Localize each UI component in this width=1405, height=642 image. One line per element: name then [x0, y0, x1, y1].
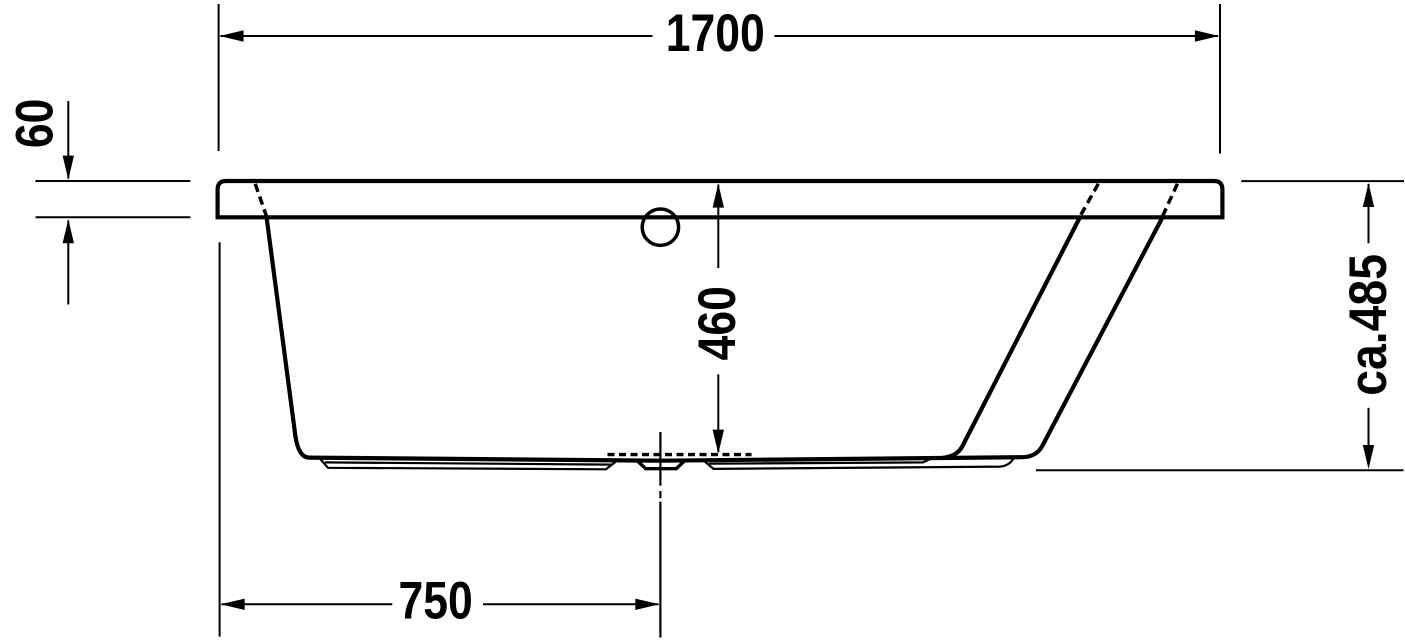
- svg-text:460: 460: [688, 286, 746, 360]
- svg-text:ca.485: ca.485: [1338, 254, 1398, 396]
- svg-text:1700: 1700: [666, 4, 765, 62]
- svg-text:750: 750: [398, 572, 472, 630]
- svg-text:60: 60: [6, 99, 64, 149]
